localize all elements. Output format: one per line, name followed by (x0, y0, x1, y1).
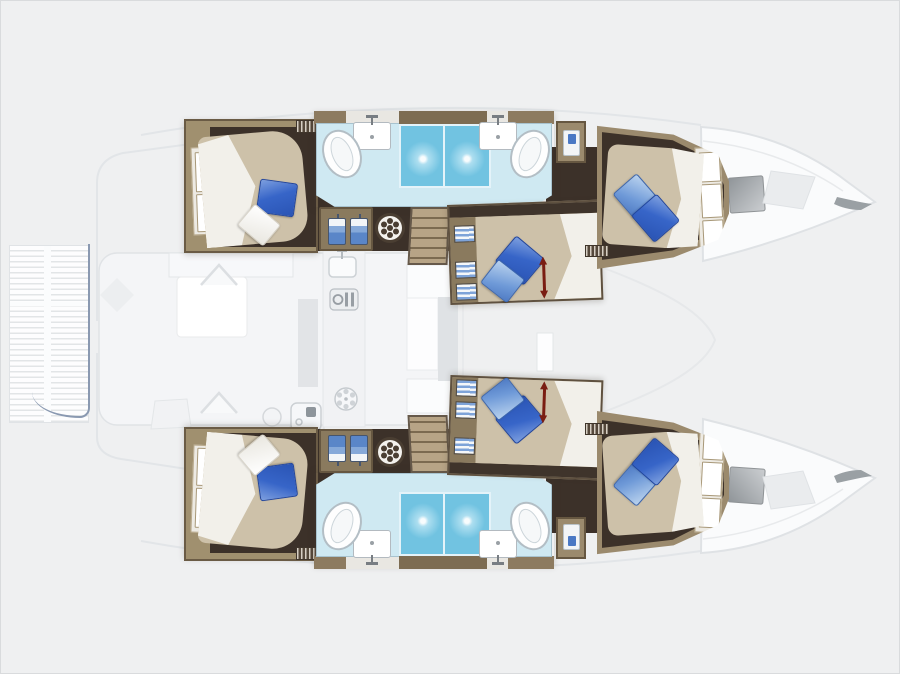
floor-plan-canvas (0, 0, 900, 674)
shelf-pillow (456, 379, 478, 397)
vent-grate-icon (585, 423, 609, 435)
hull-starboard (1, 7, 899, 674)
wardrobe (319, 429, 373, 473)
stairs-icon (407, 415, 450, 473)
mid-cabin (447, 375, 603, 480)
shelf-pillow (455, 401, 477, 419)
sink-icon (479, 530, 517, 558)
cabinet-door (563, 524, 580, 550)
cabinet-blue-item (568, 536, 576, 546)
wardrobe-icon (350, 435, 368, 462)
bathroom-block (314, 473, 554, 569)
forward-cabinet (556, 517, 586, 559)
shower-icon (399, 492, 447, 556)
mid-cabin-bed (475, 378, 601, 467)
hull-layer (1, 1, 899, 673)
shelf-pillow (454, 437, 476, 455)
window (700, 462, 723, 497)
mid-cabin-shelf-column (449, 377, 478, 463)
forward-cabin (597, 411, 729, 557)
extension-arrow-icon (537, 381, 550, 423)
fan-icon (375, 437, 405, 467)
shower-wall (399, 556, 487, 569)
forward-cabin-bed (602, 430, 705, 536)
window (702, 434, 724, 461)
aft-cabin (184, 427, 318, 561)
wardrobe-icon (328, 435, 346, 462)
